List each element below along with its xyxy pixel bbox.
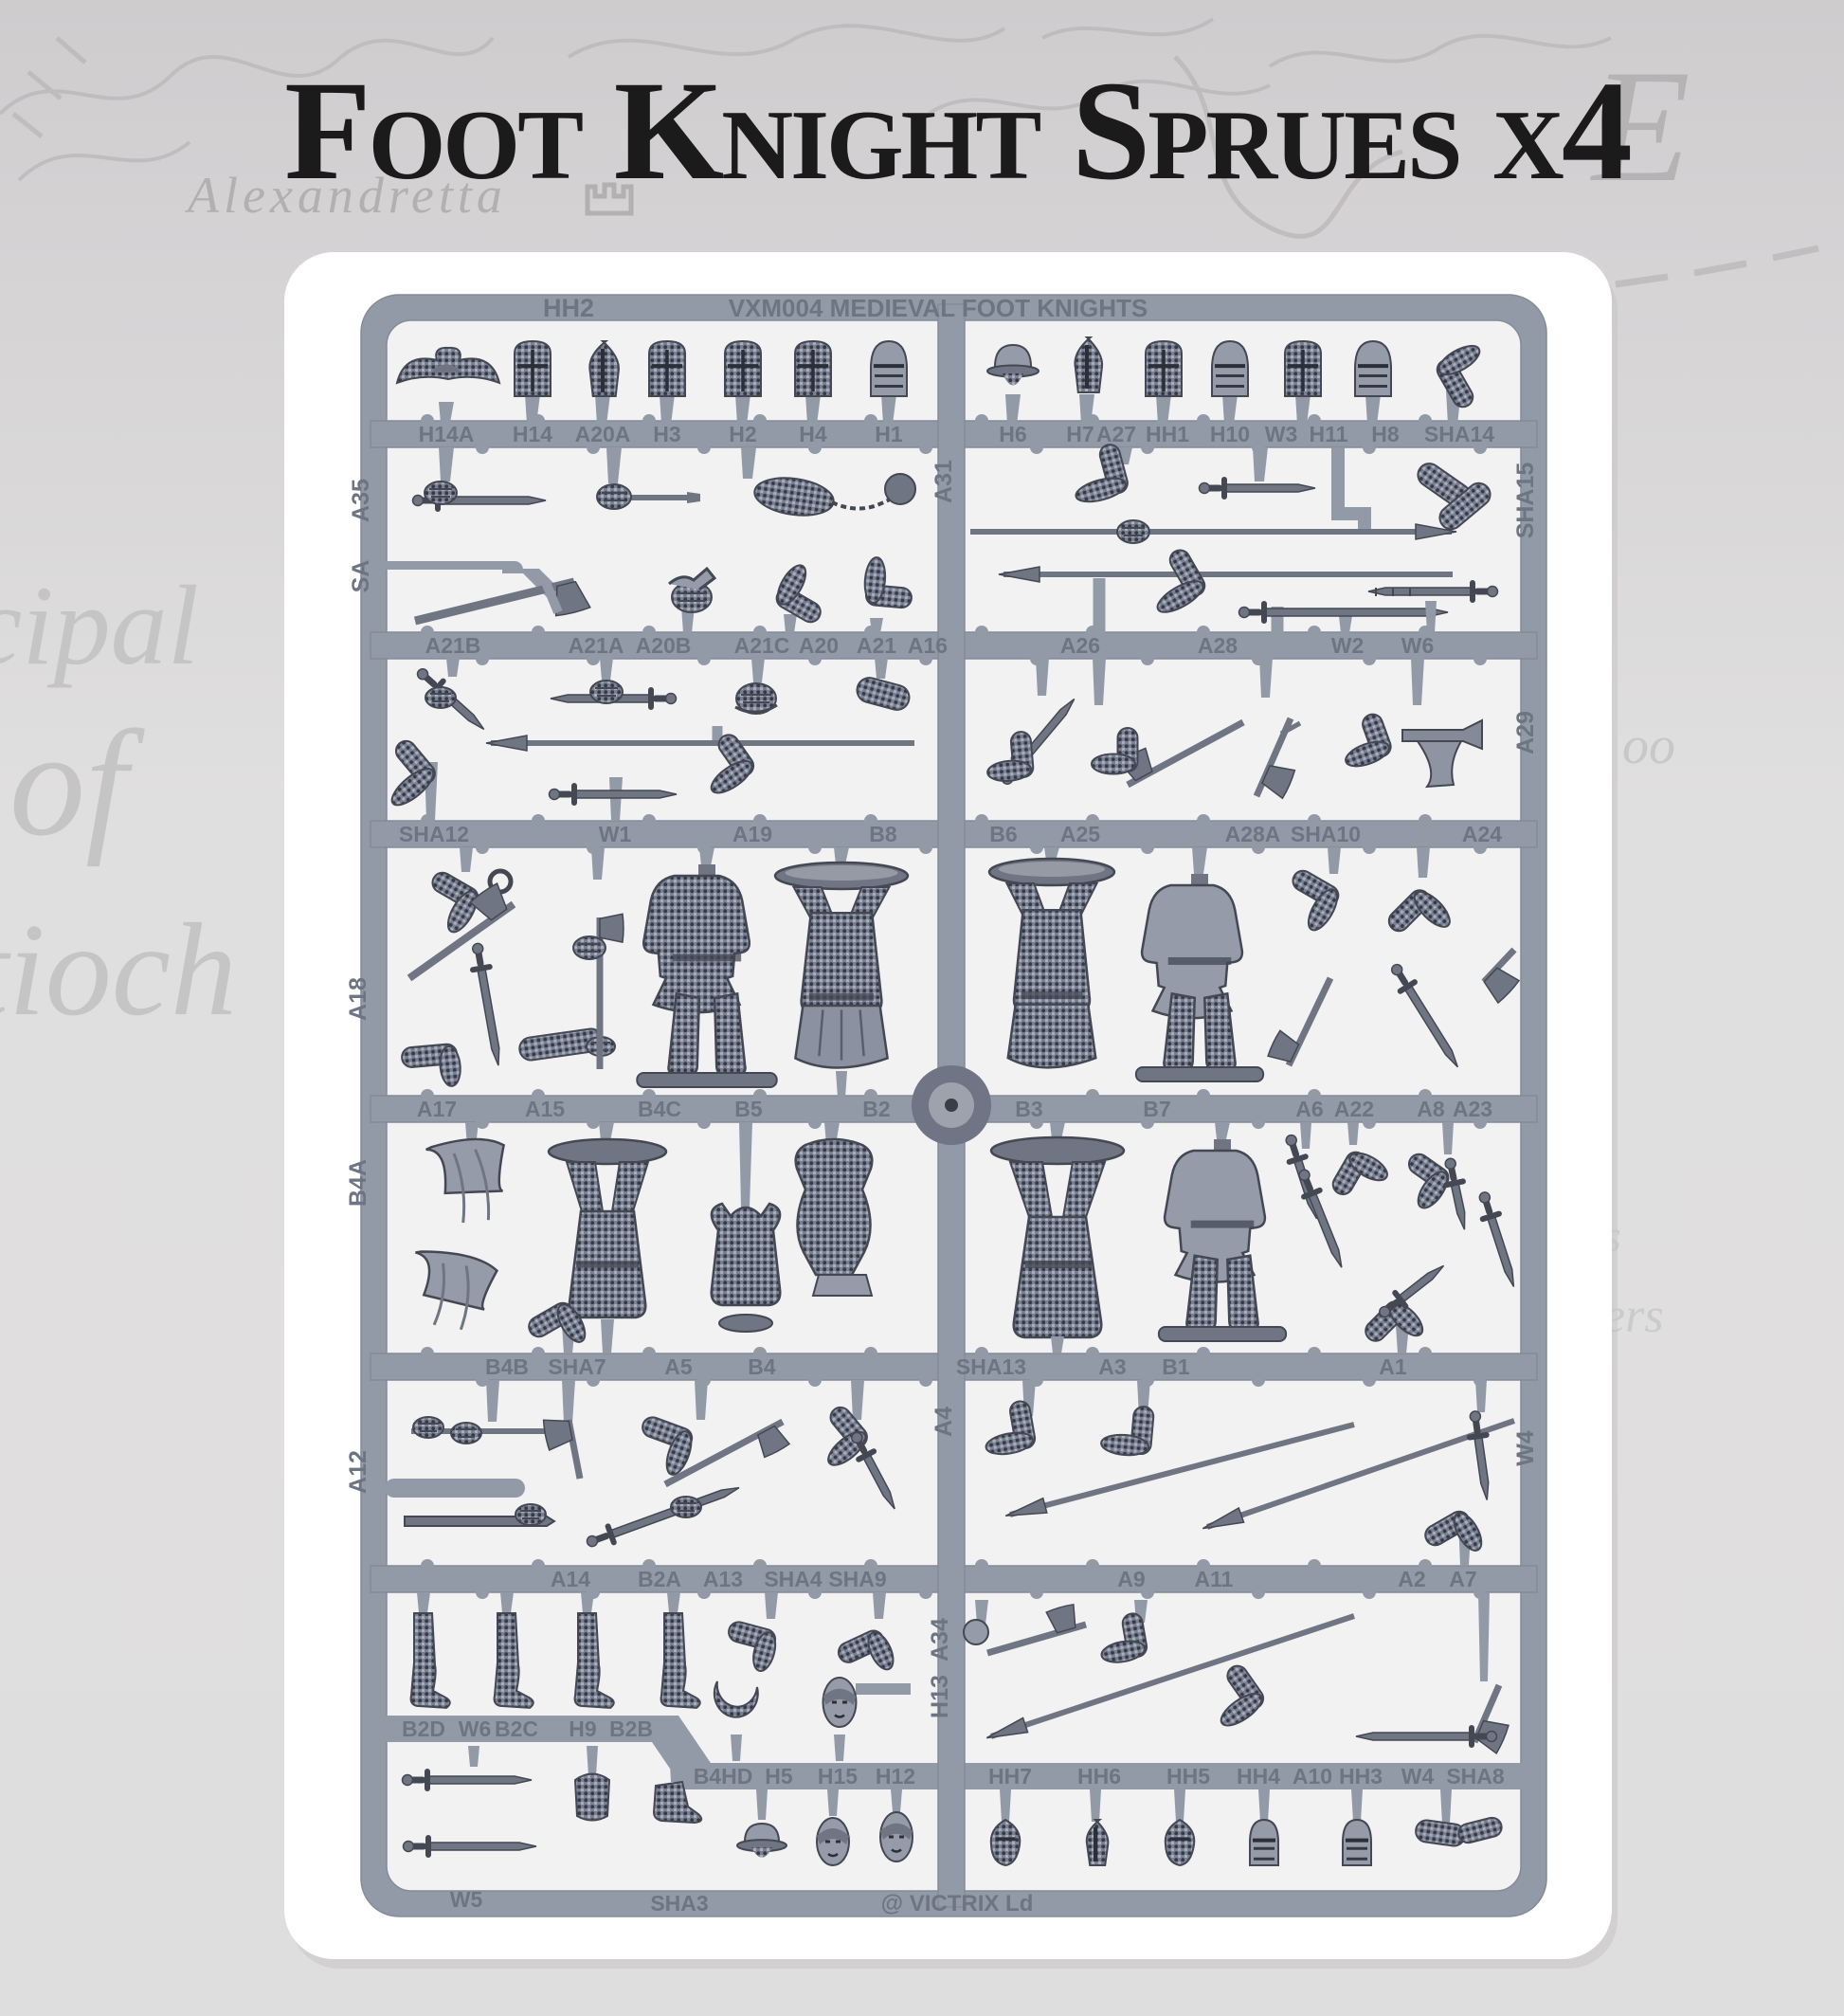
svg-text:B3: B3 xyxy=(1015,1097,1042,1121)
svg-text:SA: SA xyxy=(348,560,374,593)
svg-text:B2: B2 xyxy=(862,1097,890,1121)
svg-text:A20: A20 xyxy=(799,633,839,658)
svg-text:B6: B6 xyxy=(989,822,1017,846)
svg-text:B7: B7 xyxy=(1143,1097,1170,1121)
svg-text:HH3: HH3 xyxy=(1339,1764,1383,1789)
svg-text:A15: A15 xyxy=(525,1097,565,1121)
svg-text:A17: A17 xyxy=(417,1097,457,1121)
svg-text:H11: H11 xyxy=(1310,422,1348,446)
svg-text:SHA14: SHA14 xyxy=(1424,422,1494,446)
svg-text:H4: H4 xyxy=(799,422,827,446)
svg-text:oo: oo xyxy=(1622,717,1675,775)
svg-text:B2A: B2A xyxy=(638,1567,681,1591)
svg-text:A21: A21 xyxy=(857,633,896,658)
svg-text:H14: H14 xyxy=(513,422,552,446)
svg-text:W2: W2 xyxy=(1331,633,1365,658)
svg-text:A1: A1 xyxy=(1379,1354,1407,1379)
svg-text:B4C: B4C xyxy=(638,1097,681,1121)
svg-text:cipal: cipal xyxy=(0,562,199,688)
svg-text:H12: H12 xyxy=(876,1764,915,1789)
svg-text:of: of xyxy=(9,699,145,867)
svg-text:A19: A19 xyxy=(732,822,772,846)
svg-text:HH5: HH5 xyxy=(1166,1764,1210,1789)
svg-text:W3: W3 xyxy=(1265,422,1298,446)
svg-text:A20B: A20B xyxy=(636,633,692,658)
svg-text:SHA3: SHA3 xyxy=(650,1891,708,1916)
svg-text:HH4: HH4 xyxy=(1237,1764,1280,1789)
svg-text:A21B: A21B xyxy=(425,633,481,658)
svg-text:B4: B4 xyxy=(748,1354,776,1379)
svg-text:H5: H5 xyxy=(765,1764,793,1789)
svg-text:A29: A29 xyxy=(1512,711,1539,754)
svg-text:W6: W6 xyxy=(1401,633,1435,658)
svg-text:B2C: B2C xyxy=(495,1716,538,1741)
svg-text:A23: A23 xyxy=(1453,1097,1492,1121)
svg-text:B4A: B4A xyxy=(345,1159,371,1207)
svg-text:A7: A7 xyxy=(1449,1567,1476,1591)
svg-text:HH6: HH6 xyxy=(1077,1764,1121,1789)
svg-text:SHA7: SHA7 xyxy=(548,1354,606,1379)
svg-text:SHA13: SHA13 xyxy=(956,1354,1026,1379)
svg-text:HH7: HH7 xyxy=(988,1764,1032,1789)
svg-text:SHA12: SHA12 xyxy=(399,822,469,846)
svg-text:A27: A27 xyxy=(1096,422,1136,446)
svg-text:@ VICTRIX Ld: @ VICTRIX Ld xyxy=(881,1891,1034,1916)
svg-text:A20A: A20A xyxy=(575,422,631,446)
svg-text:A21A: A21A xyxy=(569,633,624,658)
svg-text:W4: W4 xyxy=(1512,1430,1539,1466)
svg-text:A3: A3 xyxy=(1098,1354,1126,1379)
svg-text:A16: A16 xyxy=(908,633,948,658)
svg-text:A28: A28 xyxy=(1198,633,1238,658)
svg-text:W1: W1 xyxy=(599,822,632,846)
svg-text:A26: A26 xyxy=(1060,633,1100,658)
svg-text:W5: W5 xyxy=(450,1887,483,1912)
svg-text:HH2: HH2 xyxy=(543,294,594,322)
svg-text:B5: B5 xyxy=(734,1097,763,1121)
svg-text:W4: W4 xyxy=(1401,1764,1435,1789)
svg-text:A8: A8 xyxy=(1417,1097,1445,1121)
svg-text:A24: A24 xyxy=(1462,822,1502,846)
svg-text:W6: W6 xyxy=(459,1716,492,1741)
svg-text:SHA9: SHA9 xyxy=(828,1567,886,1591)
svg-text:A2: A2 xyxy=(1398,1567,1425,1591)
svg-text:H14A: H14A xyxy=(419,422,475,446)
svg-text:A18: A18 xyxy=(345,977,371,1021)
svg-text:B1: B1 xyxy=(1162,1354,1190,1379)
svg-text:A5: A5 xyxy=(664,1354,693,1379)
svg-text:A34: A34 xyxy=(927,1618,953,1662)
svg-text:B4B: B4B xyxy=(485,1354,529,1379)
svg-text:A14: A14 xyxy=(551,1567,590,1591)
svg-text:SHA4: SHA4 xyxy=(764,1567,823,1591)
svg-text:H10: H10 xyxy=(1210,422,1250,446)
svg-text:H1: H1 xyxy=(875,422,903,446)
svg-text:A4: A4 xyxy=(931,1407,957,1437)
svg-text:A31: A31 xyxy=(931,460,957,503)
svg-text:A9: A9 xyxy=(1117,1567,1145,1591)
svg-text:A35: A35 xyxy=(348,479,374,522)
svg-text:H3: H3 xyxy=(653,422,680,446)
svg-text:SHA8: SHA8 xyxy=(1446,1764,1505,1789)
svg-text:A21C: A21C xyxy=(734,633,790,658)
svg-text:SHA15: SHA15 xyxy=(1512,463,1539,539)
svg-text:B8: B8 xyxy=(869,822,897,846)
svg-text:B2D: B2D xyxy=(402,1716,445,1741)
svg-text:B4HD: B4HD xyxy=(694,1764,753,1789)
svg-text:tioch: tioch xyxy=(0,897,237,1044)
svg-text:A28A: A28A xyxy=(1225,822,1281,846)
svg-text:A11: A11 xyxy=(1195,1567,1234,1591)
svg-text:H13: H13 xyxy=(927,1675,953,1718)
svg-text:H9: H9 xyxy=(569,1716,596,1741)
svg-text:H15: H15 xyxy=(818,1764,858,1789)
svg-text:H8: H8 xyxy=(1371,422,1400,446)
svg-text:H2: H2 xyxy=(729,422,756,446)
svg-text:VXM004 MEDIEVAL FOOT KNIGHTS: VXM004 MEDIEVAL FOOT KNIGHTS xyxy=(729,294,1148,322)
svg-text:HH1: HH1 xyxy=(1146,422,1189,446)
svg-text:A25: A25 xyxy=(1060,822,1100,846)
svg-text:A13: A13 xyxy=(703,1567,743,1591)
svg-text:A22: A22 xyxy=(1334,1097,1374,1121)
svg-text:B2B: B2B xyxy=(609,1716,653,1741)
svg-text:Foot Knight Sprues x4: Foot Knight Sprues x4 xyxy=(284,52,1631,209)
svg-text:H7: H7 xyxy=(1066,422,1094,446)
svg-text:SHA10: SHA10 xyxy=(1291,822,1361,846)
svg-text:A12: A12 xyxy=(345,1450,371,1494)
svg-text:A10: A10 xyxy=(1293,1764,1332,1789)
svg-text:A6: A6 xyxy=(1295,1097,1323,1121)
svg-text:H6: H6 xyxy=(999,422,1026,446)
